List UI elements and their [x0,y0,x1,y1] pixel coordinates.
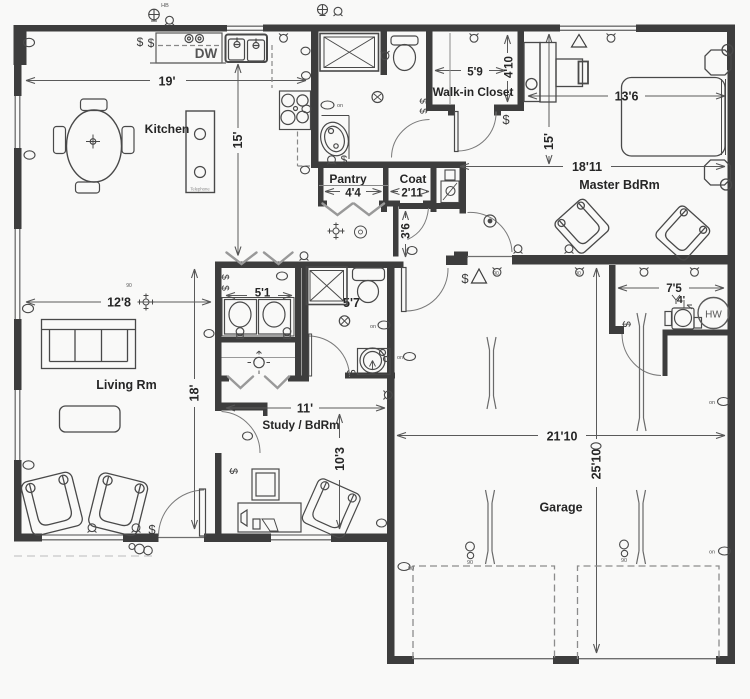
svg-text:on: on [337,103,343,109]
svg-text:11': 11' [297,402,313,416]
svg-text:90: 90 [408,566,414,572]
svg-text:$: $ [148,36,155,50]
svg-text:$: $ [461,271,469,286]
svg-text:13'6: 13'6 [615,90,639,104]
svg-text:90: 90 [575,271,581,277]
svg-text:on: on [709,400,715,406]
svg-text:$: $ [148,522,156,537]
svg-text:$: $ [341,153,348,167]
svg-text:Living Rm: Living Rm [96,378,156,392]
svg-text:10'3: 10'3 [333,447,347,471]
svg-text:2'11: 2'11 [401,188,423,200]
svg-text:5'9: 5'9 [467,67,483,79]
svg-text:4'10: 4'10 [504,56,516,78]
svg-text:90: 90 [467,560,473,566]
svg-text:$: $ [417,108,428,114]
svg-text:$: $ [227,468,239,474]
svg-text:25'10: 25'10 [590,449,604,480]
svg-text:Coat: Coat [400,172,427,186]
svg-text:90: 90 [621,558,627,564]
svg-text:$: $ [137,35,144,49]
svg-text:3'6: 3'6 [401,223,413,239]
svg-text:21'10: 21'10 [547,430,578,444]
svg-text:$: $ [417,98,428,104]
svg-text:Walk-in Closet: Walk-in Closet [433,85,514,99]
svg-text:$: $ [502,112,510,127]
svg-text:on: on [370,324,376,330]
svg-text:19': 19' [159,75,176,89]
svg-text:Pantry: Pantry [329,172,367,186]
svg-text:$: $ [219,274,230,280]
svg-text:on: on [397,355,403,361]
svg-text:DW: DW [195,46,218,61]
svg-text:$: $ [345,369,359,376]
svg-text:Study / BdRm: Study / BdRm [262,418,339,432]
svg-text:90: 90 [126,283,132,289]
svg-text:HB: HB [161,3,169,9]
svg-text:18'11: 18'11 [572,160,602,174]
svg-text:Master BdRm: Master BdRm [579,178,660,192]
svg-text:$: $ [620,321,632,327]
svg-text:Garage: Garage [539,501,582,515]
svg-text:90: 90 [493,271,499,277]
svg-text:on: on [709,550,715,556]
svg-text:4'4: 4'4 [345,188,361,200]
svg-text:12'8: 12'8 [107,296,131,310]
svg-text:15': 15' [542,133,556,150]
svg-text:HW: HW [705,310,722,321]
svg-text:5'7: 5'7 [343,296,360,310]
svg-text:15': 15' [231,132,245,149]
svg-text:$: $ [219,285,230,291]
svg-text:Telephone: Telephone [190,187,210,192]
svg-text:18': 18' [188,385,202,402]
svg-text:Kitchen: Kitchen [145,122,190,136]
